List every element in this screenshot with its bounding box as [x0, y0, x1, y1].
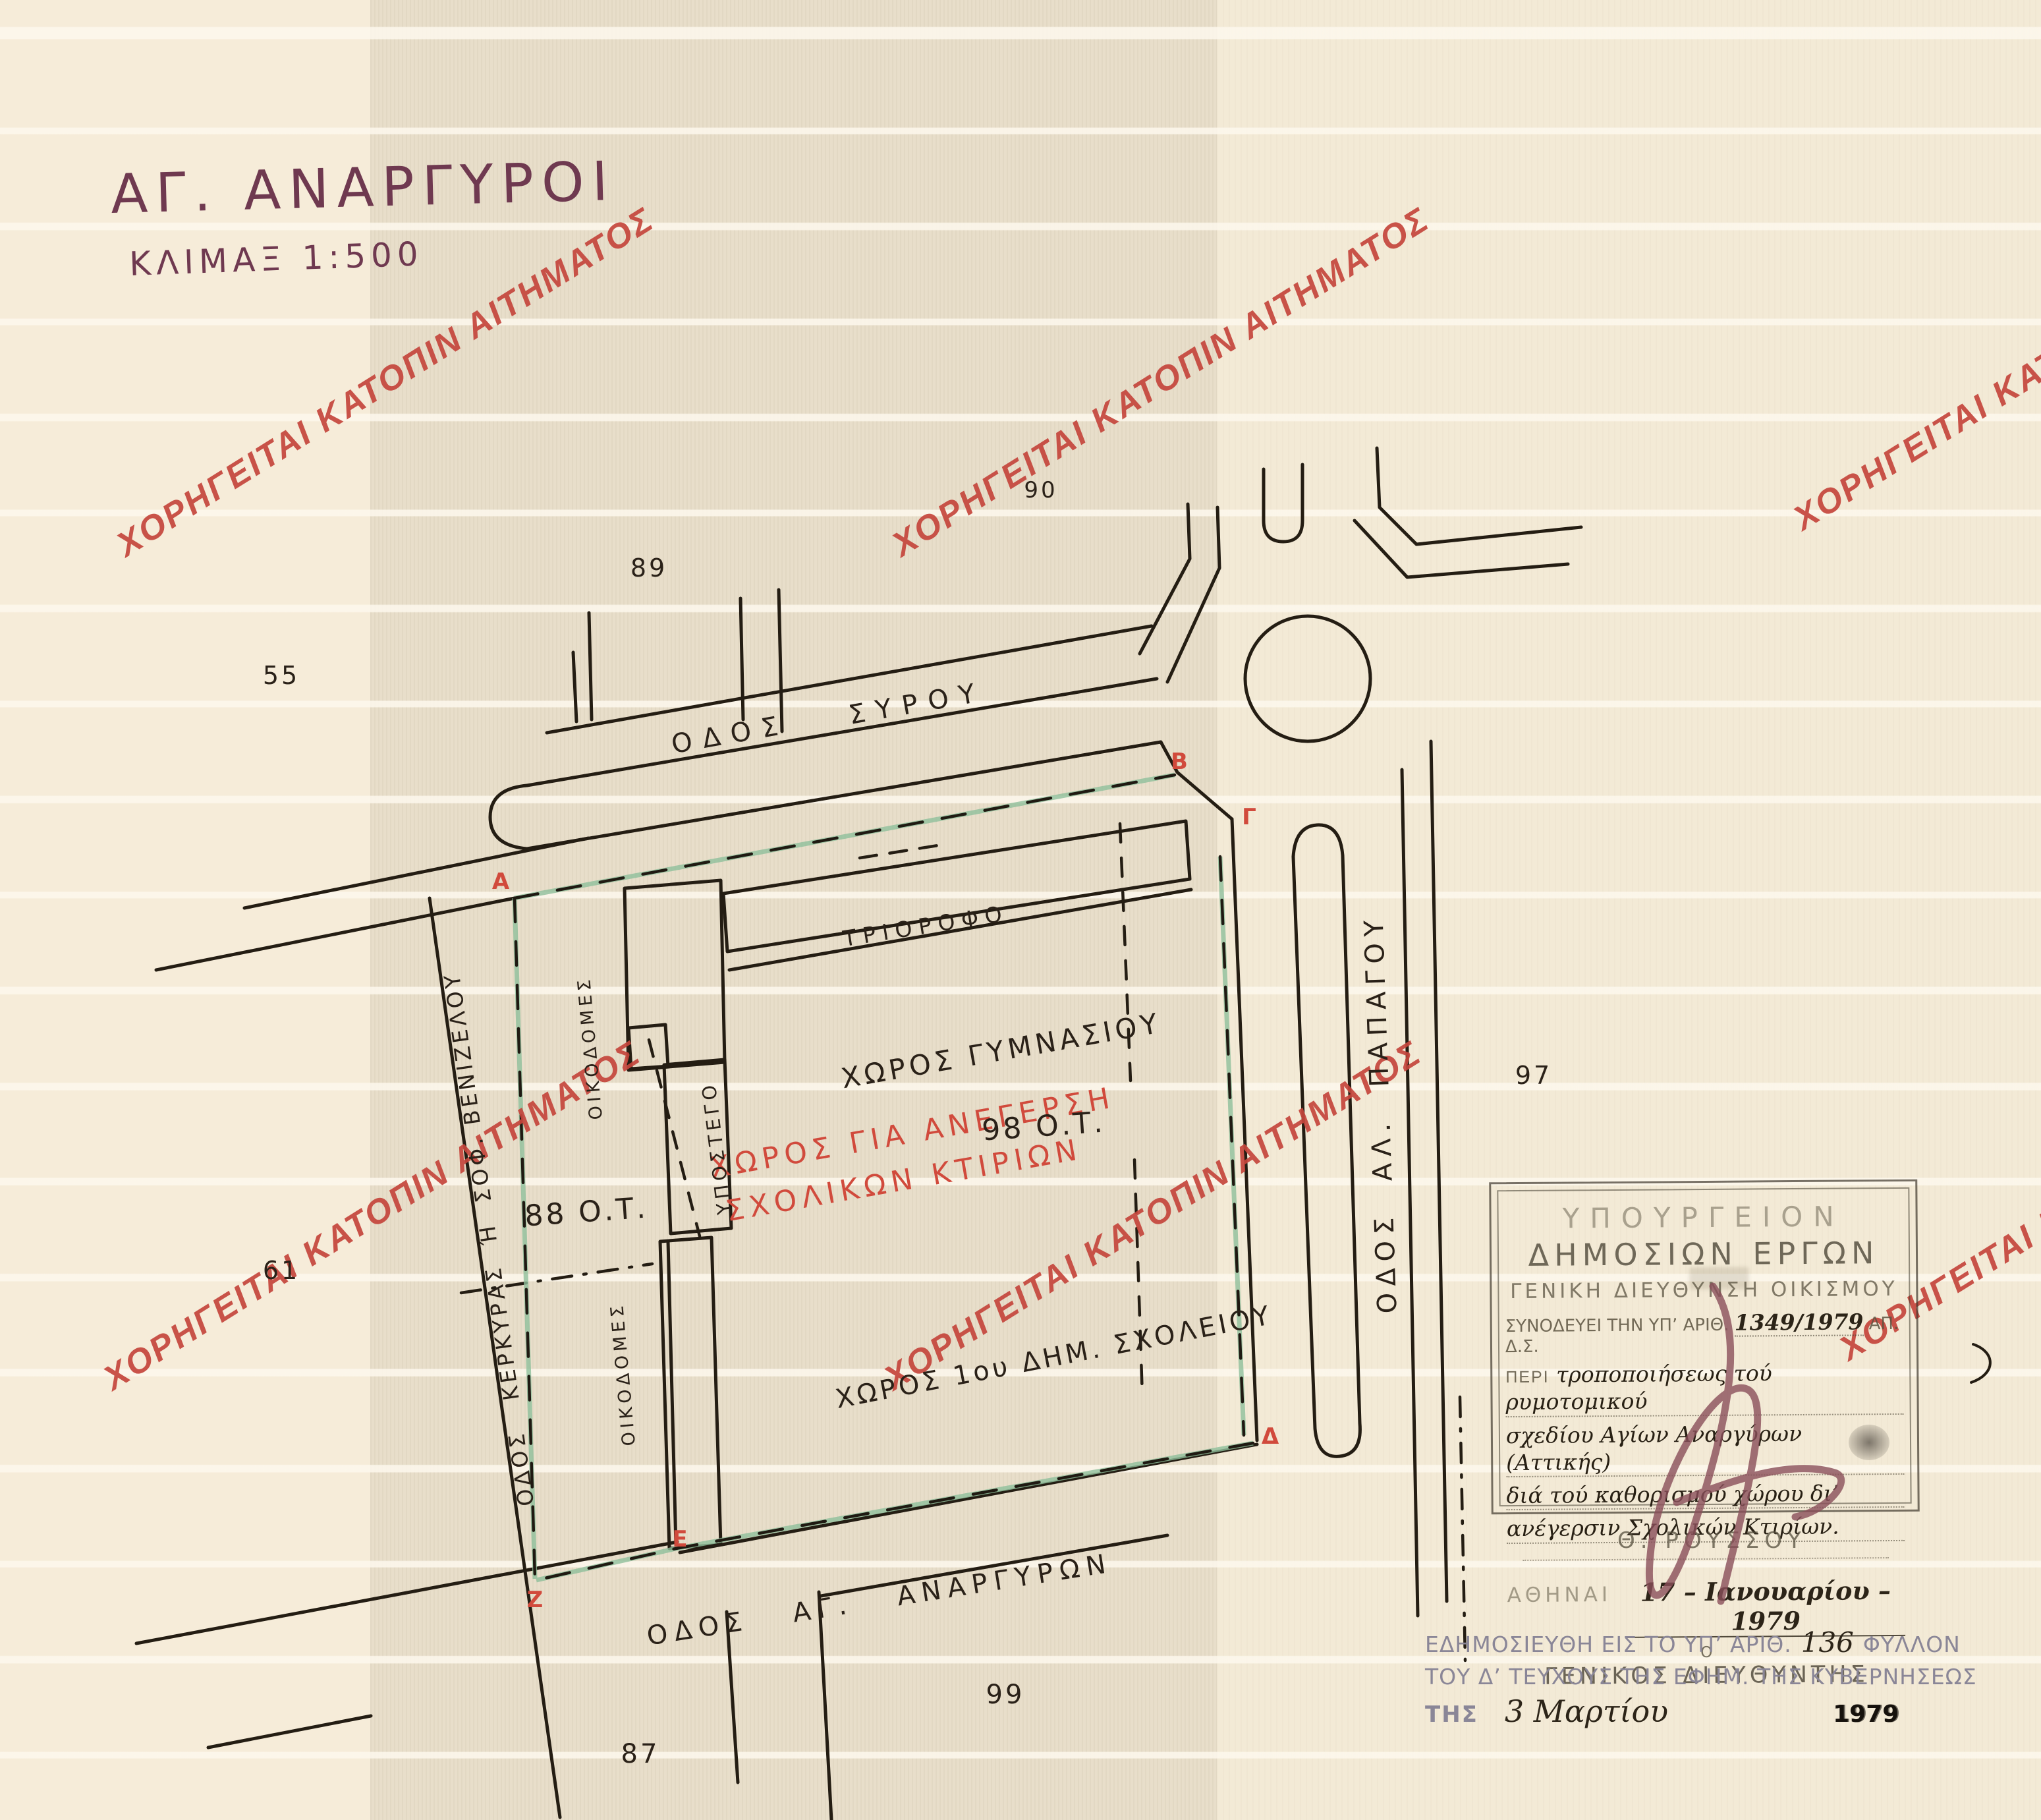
publication-note: ΕΔΗΜΟΣΙΕΥΘΗ ΕΙΣ ΤΟ ΥΠ’ ΑΡΙΘ. 136 ΦΥΛΛΟΝ … — [1425, 1626, 1899, 1729]
publication-line1-prefix: ΕΔΗΜΟΣΙΕΥΘΗ ΕΙΣ ΤΟ ΥΠ’ ΑΡΙΘ. — [1425, 1632, 1792, 1657]
signature — [0, 0, 2041, 1820]
publication-issue-number: 136 — [1801, 1626, 1854, 1659]
publication-line3-prefix: ΤΗΣ — [1425, 1701, 1478, 1728]
scanned-map-document: ΧΟΡΗΓΕΙΤΑΙ ΚΑΤΟΠΙΝ ΑΙΤΗΜΑΤΟΣ ΧΟΡΗΓΕΙΤΑΙ … — [0, 0, 2041, 1820]
publication-date: 3 Μαρτίου — [1505, 1693, 1668, 1729]
publication-year: 1979 — [1833, 1701, 1899, 1728]
publication-line2: ΤΟΥ Δ’ ΤΕΥΧΟΥΣ ΤΗΣ ΕΦΗΜ. ΤΗΣ ΚΥΒΕΡΝΗΣΕΩΣ — [1425, 1664, 1977, 1690]
publication-line1-suffix: ΦΥΛΛΟΝ — [1863, 1632, 1961, 1657]
